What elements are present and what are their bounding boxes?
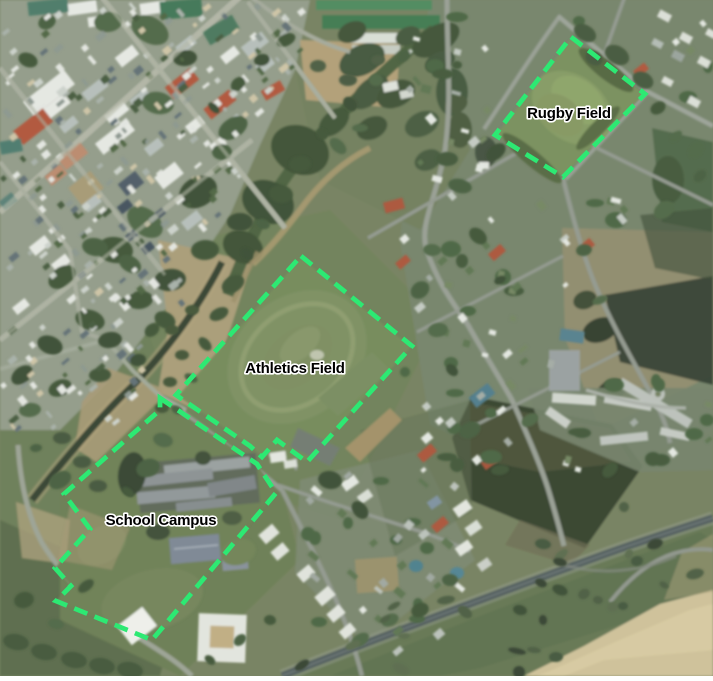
svg-text:School Campus: School Campus <box>106 512 217 529</box>
svg-text:Rugby Field: Rugby Field <box>527 105 611 122</box>
svg-text:Athletics Field: Athletics Field <box>245 360 345 377</box>
